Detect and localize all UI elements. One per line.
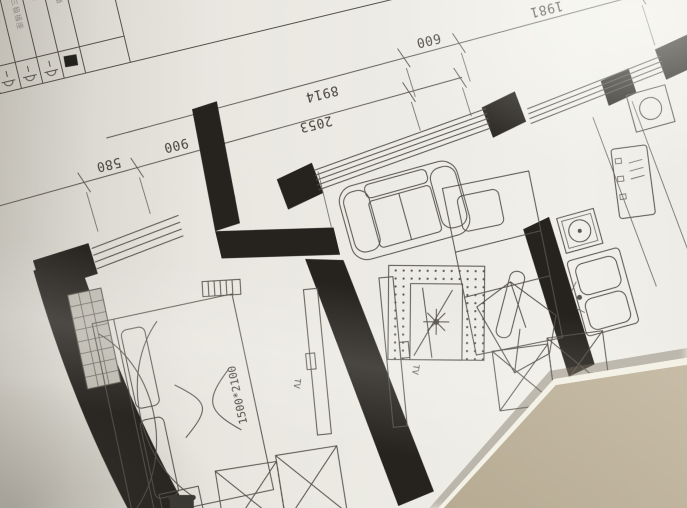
gas-burner <box>557 208 603 253</box>
dim-580: 580 <box>95 154 123 174</box>
distribution-box-symbol <box>64 54 79 67</box>
bed-size-label: 1500*2100 <box>225 364 250 425</box>
phone-icon <box>168 495 196 508</box>
wall-bedroom-left-curved <box>32 234 257 508</box>
wall-top-right-bit <box>599 68 638 107</box>
rug-and-table <box>388 265 485 360</box>
counter-edge <box>593 113 657 291</box>
dim-900: 900 <box>162 134 190 154</box>
tv-label: TV <box>409 364 420 375</box>
floor-plan-sheet: 单相二极插座 单相三极插座 单相二三极插座 空调插座 照明配电箱 <box>0 0 687 508</box>
window-living-top <box>309 109 495 190</box>
wall-kitchen-strip <box>522 215 596 379</box>
tv-console-bedroom-side: TV <box>281 288 331 437</box>
counter-edge <box>632 97 687 275</box>
walls <box>5 0 687 508</box>
dim-2053: 2053 <box>298 112 334 134</box>
dim-8914: 8914 <box>304 82 340 104</box>
sofa <box>336 157 474 263</box>
legend-label: 空调插座 <box>25 0 41 2</box>
blanket-fold <box>175 380 208 437</box>
wall-living-window-pier-right <box>480 90 528 138</box>
dimension-lines: 8914 2053 900 580 2300 600 1981 <box>0 0 687 290</box>
legend-label: 单相二三极插座 <box>4 0 26 31</box>
wardrobe-bedroom <box>214 446 348 508</box>
socket-symbol <box>0 69 16 87</box>
bolster <box>495 270 527 340</box>
dim-600: 600 <box>414 29 442 49</box>
photo-of-floor-plan: 单相二极插座 单相三极插座 单相二三极插座 空调插座 照明配电箱 <box>0 0 687 508</box>
legend-label: 照明配电箱 <box>47 0 65 5</box>
socket-symbol <box>42 59 59 77</box>
opening-edge-line <box>318 172 331 227</box>
wall-entry-vertical <box>186 101 247 231</box>
tv-label: TV <box>291 378 302 389</box>
door-threshold <box>202 279 241 296</box>
socket-symbol <box>21 64 38 82</box>
plan-drawing: 单相二极插座 单相三极插座 单相二三极插座 空调插座 照明配电箱 <box>0 0 687 508</box>
window-bedroom-top <box>89 215 186 269</box>
door-swing-arc <box>589 348 687 420</box>
